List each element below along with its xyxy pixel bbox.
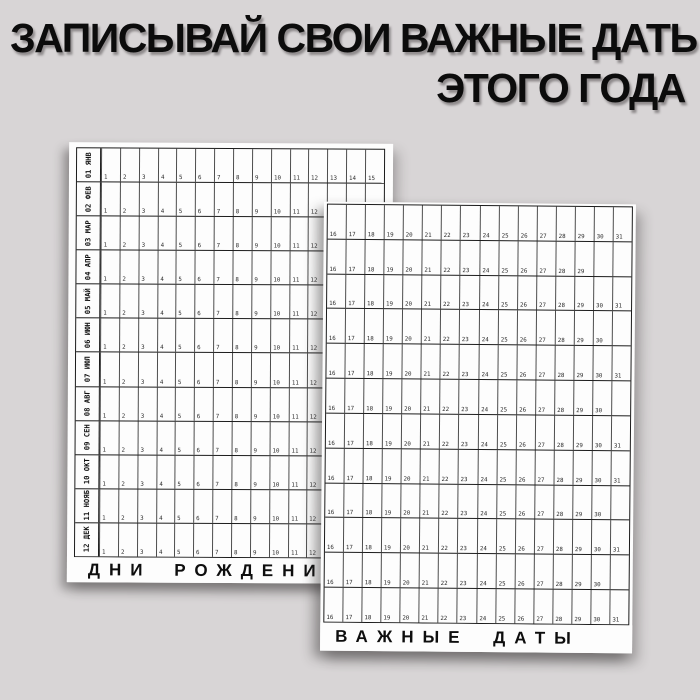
day-cell: 11: [288, 354, 307, 387]
month-row: 161718192021222324252627282930: [327, 309, 631, 346]
day-cell: 11: [288, 524, 307, 557]
day-cell: 11: [288, 388, 307, 421]
day-number: 21: [425, 233, 432, 239]
day-number: 8: [234, 482, 238, 488]
day-number: 10: [272, 414, 279, 420]
day-cell: 19: [384, 205, 403, 239]
day-number: 21: [425, 267, 432, 273]
month-label: 08 АВГ: [83, 390, 91, 416]
month-label: 04 АПР: [84, 254, 92, 280]
day-cell: 8: [231, 490, 250, 523]
day-cell: 21: [419, 589, 438, 623]
day-cell: 24: [477, 415, 496, 449]
month-cell: 07 ИЮЛ: [76, 353, 100, 386]
day-cell: 11: [290, 149, 309, 182]
day-cell: 4: [156, 353, 175, 386]
day-number: 2: [121, 481, 125, 487]
day-cell: 18: [362, 553, 381, 587]
day-cell: 3: [138, 319, 157, 352]
month-row: 161718192021222324252627282930: [326, 379, 630, 416]
day-cell: 30: [590, 555, 609, 589]
day-cell: 21: [422, 206, 441, 240]
day-cell: 16: [327, 309, 345, 343]
day-cell: 16: [327, 240, 345, 274]
day-number: 7: [216, 380, 220, 386]
day-number: 24: [479, 546, 486, 552]
day-number: 21: [423, 442, 430, 448]
day-number: 19: [386, 302, 393, 308]
day-number: 22: [441, 581, 448, 587]
day-number: 7: [217, 243, 221, 249]
day-number: 30: [593, 582, 600, 588]
day-cell: 26: [516, 380, 535, 414]
day-number: 11: [291, 516, 298, 522]
day-number: 20: [406, 267, 413, 273]
day-cell: 28: [553, 520, 572, 554]
month-row: 16171819202122232425262728293031: [324, 588, 628, 624]
page-title-line2: ЭТОГО ГОДА: [10, 63, 685, 113]
day-number: 27: [539, 303, 546, 309]
day-number: 17: [348, 336, 355, 342]
day-number: 30: [594, 478, 601, 484]
month-cell: 05 МАЙ: [76, 285, 100, 318]
month-label: 10 ОКТ: [83, 458, 91, 484]
day-number: 2: [122, 345, 126, 351]
day-cell: 19: [382, 449, 401, 483]
day-cell: 24: [477, 450, 496, 484]
day-number: 28: [556, 512, 563, 518]
day-cell: 9: [250, 490, 269, 523]
day-number: 20: [404, 476, 411, 482]
day-cell: 24: [476, 589, 495, 623]
day-cell: 10: [269, 422, 288, 455]
day-number: 11: [291, 380, 298, 386]
day-number: 17: [348, 267, 355, 273]
day-number: 23: [460, 581, 467, 587]
day-cell: 7: [214, 217, 233, 250]
day-cell: 23: [458, 415, 477, 449]
day-number: 28: [558, 303, 565, 309]
day-cell: 5: [176, 285, 195, 318]
day-cell: 18: [363, 414, 382, 448]
day-cell: 30: [591, 486, 610, 520]
day-cell: 30: [590, 590, 609, 624]
day-number: 31: [613, 478, 620, 484]
day-cell: 26: [515, 485, 534, 519]
day-number: 12: [311, 244, 318, 250]
day-number: 17: [347, 441, 354, 447]
month-cell: 06 ИЮН: [76, 319, 100, 352]
day-number: 5: [179, 175, 183, 181]
day-number: 18: [367, 371, 374, 377]
day-number: 9: [254, 414, 258, 420]
day-cell: [611, 381, 630, 415]
day-cell: 1: [99, 489, 118, 522]
day-cell: 16: [325, 483, 343, 517]
day-cell: 31: [613, 207, 632, 241]
day-cell: 5: [175, 319, 194, 352]
day-number: 7: [217, 175, 221, 181]
day-number: 16: [328, 441, 335, 447]
day-cell: 2: [119, 353, 138, 386]
day-number: 2: [122, 311, 126, 317]
day-cell: 24: [479, 206, 498, 240]
day-number: 3: [140, 447, 144, 453]
day-cell: 18: [364, 240, 383, 274]
day-number: 2: [121, 515, 125, 521]
day-cell: 23: [459, 345, 478, 379]
month-row: 16171819202122232425262728293031: [326, 414, 630, 451]
day-cell: 7: [213, 319, 232, 352]
day-number: 12: [310, 516, 317, 522]
day-number: 11: [291, 414, 298, 420]
day-number: 29: [576, 443, 583, 449]
day-number: 21: [422, 616, 429, 622]
day-number: 18: [366, 476, 373, 482]
day-number: 6: [196, 516, 200, 522]
day-number: 4: [160, 311, 164, 317]
day-cell: 10: [269, 490, 288, 523]
day-cell: 23: [457, 554, 476, 588]
day-number: 9: [254, 346, 258, 352]
day-cell: 28: [555, 276, 574, 310]
day-number: 28: [558, 234, 565, 240]
day-cell: 17: [345, 274, 364, 308]
day-cell: 21: [420, 414, 439, 448]
day-cell: 9: [250, 456, 269, 489]
page-title: ЗАПИСЫВАЙ СВОИ ВАЖНЫЕ ДАТЫ ЭТОГО ГОДА: [10, 13, 685, 113]
day-number: 30: [596, 339, 603, 345]
day-cell: 10: [269, 524, 288, 557]
day-number: 20: [406, 232, 413, 238]
month-row: 1617181920212223242526272829: [327, 240, 631, 277]
day-cell: 22: [440, 275, 459, 309]
day-cell: 31: [611, 346, 630, 380]
day-number: 28: [557, 443, 564, 449]
day-number: 4: [159, 413, 163, 419]
day-cell: 5: [174, 524, 193, 557]
day-cell: 8: [232, 388, 251, 421]
day-cell: 28: [552, 590, 571, 624]
day-cell: 26: [516, 311, 535, 345]
day-cell: 23: [459, 310, 478, 344]
day-number: 4: [159, 550, 163, 556]
day-number: 21: [422, 581, 429, 587]
day-cell: 7: [213, 285, 232, 318]
day-number: 29: [575, 478, 582, 484]
day-number: 12: [309, 551, 316, 557]
day-cell: 20: [401, 414, 420, 448]
month-label: 03 МАР: [84, 220, 92, 246]
day-cell: 10: [271, 149, 290, 182]
day-cell: 27: [534, 520, 553, 554]
day-cell: 25: [496, 485, 515, 519]
day-cell: 21: [420, 484, 439, 518]
day-cell: [610, 555, 629, 589]
day-cell: 28: [555, 241, 574, 275]
day-cell: 30: [591, 520, 610, 554]
day-cell: 19: [383, 310, 402, 344]
day-number: 5: [178, 379, 182, 385]
day-cell: 27: [536, 207, 555, 241]
day-number: 28: [558, 269, 565, 275]
day-cell: 20: [401, 449, 420, 483]
day-number: 6: [197, 345, 201, 351]
day-number: 18: [367, 337, 374, 343]
day-cell: 10: [270, 320, 289, 353]
day-cell: 9: [251, 217, 270, 250]
day-cell: 18: [362, 518, 381, 552]
day-cell: 3: [137, 523, 156, 556]
day-cell: 17: [344, 414, 363, 448]
month-label: 07 ИЮЛ: [83, 356, 91, 382]
day-cell: 6: [195, 285, 214, 318]
day-number: 28: [556, 478, 563, 484]
day-number: 2: [122, 243, 126, 249]
day-cell: 20: [403, 240, 422, 274]
day-cell: 15: [365, 150, 384, 183]
day-cell: 29: [571, 555, 590, 589]
day-number: 26: [518, 477, 525, 483]
day-cell: 26: [517, 206, 536, 240]
day-cell: 25: [495, 520, 514, 554]
day-cell: 28: [554, 381, 573, 415]
day-cell: 27: [533, 555, 552, 589]
day-cell: 23: [459, 380, 478, 414]
day-cell: 6: [195, 217, 214, 250]
day-cell: 1: [100, 319, 119, 352]
day-number: 3: [141, 311, 145, 317]
day-cell: 23: [457, 519, 476, 553]
day-cell: 4: [157, 217, 176, 250]
day-cell: 9: [251, 285, 270, 318]
day-number: 19: [386, 337, 393, 343]
day-cell: 25: [495, 554, 514, 588]
day-number: 9: [255, 209, 259, 215]
day-number: 10: [273, 244, 280, 250]
day-number: 6: [198, 209, 202, 215]
day-cell: 18: [363, 449, 382, 483]
day-cell: 30: [594, 207, 613, 241]
day-number: 28: [557, 408, 564, 414]
day-number: 5: [178, 516, 182, 522]
day-number: 3: [140, 482, 144, 488]
day-number: 27: [538, 338, 545, 344]
day-number: 25: [500, 373, 507, 379]
day-number: 20: [404, 441, 411, 447]
day-cell: 4: [156, 387, 175, 420]
day-number: 9: [254, 278, 258, 284]
day-cell: 16: [327, 274, 345, 308]
day-cell: 26: [514, 589, 533, 623]
day-cell: 10: [271, 183, 290, 216]
day-number: 18: [367, 302, 374, 308]
day-number: 16: [328, 476, 335, 482]
day-cell: 19: [384, 240, 403, 274]
day-cell: 29: [574, 276, 593, 310]
day-number: 24: [481, 338, 488, 344]
day-number: 8: [235, 278, 239, 284]
day-number: 8: [235, 448, 239, 454]
day-cell: 17: [344, 344, 363, 378]
day-number: 9: [253, 516, 257, 522]
day-cell: 5: [175, 387, 194, 420]
day-number: 12: [310, 482, 317, 488]
day-number: 28: [557, 338, 564, 344]
day-number: 7: [216, 448, 220, 454]
day-cell: 7: [214, 251, 233, 284]
day-number: 27: [538, 408, 545, 414]
day-number: 21: [424, 302, 431, 308]
day-cell: 8: [232, 353, 251, 386]
day-cell: 16: [326, 344, 344, 378]
day-number: 10: [274, 210, 281, 216]
day-number: 23: [463, 268, 470, 274]
day-number: 26: [518, 512, 525, 518]
day-number: 12: [310, 448, 317, 454]
day-cell: 9: [250, 422, 269, 455]
day-cell: 5: [176, 183, 195, 216]
day-number: 26: [520, 303, 527, 309]
page-title-line1: ЗАПИСЫВАЙ СВОИ ВАЖНЫЕ ДАТЫ: [10, 13, 685, 63]
day-number: 25: [501, 268, 508, 274]
day-number: 8: [235, 380, 239, 386]
month-cell: 08 АВГ: [76, 387, 100, 420]
day-cell: 11: [289, 286, 308, 319]
day-cell: 21: [421, 275, 440, 309]
day-number: 8: [235, 414, 239, 420]
day-cell: 20: [400, 519, 419, 553]
day-number: 22: [441, 616, 448, 622]
day-cell: 7: [213, 387, 232, 420]
day-number: 5: [179, 243, 183, 249]
day-cell: 22: [440, 310, 459, 344]
day-number: 5: [179, 311, 183, 317]
month-row: 16171819202122232425262728293031: [325, 518, 629, 555]
day-number: 5: [178, 448, 182, 454]
day-number: 9: [253, 448, 257, 454]
day-cell: 17: [343, 518, 362, 552]
day-number: 27: [537, 512, 544, 518]
day-cell: 11: [288, 422, 307, 455]
day-number: 17: [349, 232, 356, 238]
day-number: 3: [142, 175, 146, 181]
day-number: 16: [330, 232, 337, 238]
day-cell: 4: [156, 523, 175, 556]
day-number: 23: [462, 407, 469, 413]
day-number: 30: [594, 513, 601, 519]
month-label: 02 ФЕВ: [84, 186, 92, 212]
day-cell: 29: [571, 590, 590, 624]
day-number: 7: [216, 346, 220, 352]
day-cell: 4: [157, 319, 176, 352]
day-number: 22: [442, 511, 449, 517]
day-cell: 11: [288, 490, 307, 523]
day-number: 16: [327, 510, 334, 516]
day-cell: 10: [270, 251, 289, 284]
day-number: 29: [576, 408, 583, 414]
day-cell: 9: [251, 320, 270, 353]
day-cell: 30: [593, 311, 612, 345]
day-cell: 1: [100, 285, 119, 318]
month-cell: 01 ЯНВ: [77, 148, 101, 181]
day-number: 21: [424, 372, 431, 378]
day-number: 7: [215, 516, 219, 522]
day-cell: 24: [478, 310, 497, 344]
day-number: 24: [480, 442, 487, 448]
day-number: 18: [365, 546, 372, 552]
month-cell: 11 НОЯБ: [75, 489, 99, 522]
day-cell: 31: [610, 521, 629, 555]
day-number: 1: [103, 311, 107, 317]
day-number: 31: [614, 443, 621, 449]
day-number: 29: [577, 269, 584, 275]
day-cell: 4: [157, 251, 176, 284]
day-number: 19: [387, 232, 394, 238]
day-number: 17: [346, 511, 353, 517]
day-number: 4: [161, 175, 165, 181]
day-cell: 11: [289, 217, 308, 250]
month-cell: 03 МАР: [77, 216, 101, 249]
day-number: 23: [461, 512, 468, 518]
day-cell: 9: [252, 149, 271, 182]
day-cell: 27: [535, 311, 554, 345]
day-number: 23: [463, 233, 470, 239]
day-number: 29: [575, 547, 582, 553]
day-number: 7: [217, 209, 221, 215]
day-number: 4: [159, 482, 163, 488]
day-number: 5: [179, 209, 183, 215]
day-number: 29: [577, 304, 584, 310]
day-cell: 8: [233, 217, 252, 250]
day-number: 26: [518, 442, 525, 448]
day-cell: 31: [611, 416, 630, 450]
day-cell: 1: [100, 387, 119, 420]
day-number: 6: [198, 277, 202, 283]
important-dates-sheet: 1617181920212223242526272829303116171819…: [320, 202, 636, 654]
day-cell: 6: [194, 353, 213, 386]
day-number: 4: [160, 345, 164, 351]
day-number: 22: [442, 477, 449, 483]
day-number: 19: [384, 511, 391, 517]
day-number: 25: [499, 442, 506, 448]
day-number: 10: [272, 448, 279, 454]
day-number: 17: [346, 545, 353, 551]
day-cell: 31: [610, 451, 629, 485]
day-cell: 10: [270, 354, 289, 387]
day-cell: 19: [383, 275, 402, 309]
day-number: 25: [499, 512, 506, 518]
day-cell: 8: [232, 422, 251, 455]
day-cell: 27: [535, 346, 554, 380]
day-cell: 29: [572, 485, 591, 519]
day-number: 11: [291, 550, 298, 556]
day-number: 17: [348, 302, 355, 308]
day-cell: 30: [592, 416, 611, 450]
day-cell: 17: [345, 240, 364, 274]
day-cell: 22: [441, 206, 460, 240]
day-number: 23: [461, 442, 468, 448]
day-cell: 20: [402, 310, 421, 344]
day-cell: 2: [119, 285, 138, 318]
day-cell: 3: [138, 251, 157, 284]
day-cell: [593, 242, 612, 276]
day-cell: 2: [119, 251, 138, 284]
day-cell: 4: [157, 285, 176, 318]
day-cell: 2: [118, 489, 137, 522]
day-number: 21: [423, 476, 430, 482]
day-number: 5: [179, 277, 183, 283]
